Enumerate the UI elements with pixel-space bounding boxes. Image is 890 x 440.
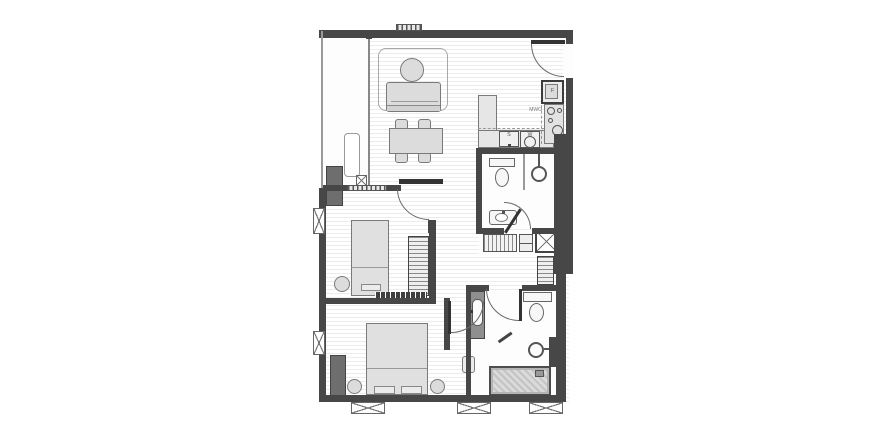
page: { "labels": { "fridge": "F", "sink": "S"…: [0, 0, 890, 440]
window-sill-marker: [457, 402, 491, 414]
bottom-wall: [319, 395, 566, 402]
toilet-tank: [489, 158, 515, 167]
bedrooms-divider-wall: [323, 298, 436, 304]
bed-foot-shelf: [361, 284, 381, 291]
hall-cabinet: [537, 256, 554, 285]
right-wall-thick: [554, 134, 573, 274]
shower-head: [531, 166, 547, 182]
nightstand: [347, 379, 362, 394]
window-sill-marker: [529, 402, 563, 414]
toilet-bowl: [529, 303, 544, 322]
blanket-line: [352, 267, 388, 268]
radiator-strip: [375, 292, 427, 298]
toilet-bowl: [495, 168, 509, 187]
burner: [548, 118, 553, 123]
bedroom-door-leaf: [399, 179, 443, 184]
burner: [547, 107, 555, 115]
stool: [334, 276, 350, 292]
dining-table: [389, 128, 443, 154]
window-marker: [313, 331, 325, 355]
wardrobe: [408, 236, 429, 296]
burner: [557, 108, 562, 113]
shower-glass: [523, 154, 525, 190]
coffee-table: [400, 58, 424, 82]
bedroom-right-wall: [429, 232, 436, 298]
pillow: [374, 386, 395, 394]
right-wall: [566, 78, 573, 140]
balcony-bench: [344, 133, 360, 177]
wardrobe-dark: [330, 355, 346, 396]
sofa-back: [387, 105, 440, 111]
balcony-divider-post: [366, 30, 372, 39]
bathroom1-bottom-wall: [532, 228, 560, 234]
fridge: F: [541, 80, 564, 104]
sofa-seat-line: [391, 101, 438, 102]
top-vent: [396, 24, 422, 31]
washer-drum: [524, 136, 536, 148]
bathroom1-bottom-wall: [476, 228, 504, 234]
entry-threshold: [563, 42, 573, 80]
sink-faucet: [508, 144, 511, 147]
storage-cells: [519, 234, 533, 252]
bathroom1-top-wall: [476, 148, 564, 154]
balcony-divider: [368, 31, 370, 185]
top-wall: [319, 30, 573, 38]
right-wall-lower: [556, 274, 566, 402]
sofa: [386, 82, 441, 112]
right-wall: [566, 30, 573, 44]
bathtub: [489, 366, 551, 396]
shower-wall-stub: [549, 337, 556, 367]
bed-double: [366, 323, 428, 395]
window-marker: [313, 208, 325, 234]
pillow: [401, 386, 422, 394]
floor-plan: F MWO S W: [311, 18, 579, 418]
linen-cabinet: [483, 234, 517, 252]
window-sill-marker: [351, 402, 385, 414]
bathroom2-top-wall: [522, 285, 556, 291]
kitchen-sink: S: [499, 131, 519, 147]
nightstand: [430, 379, 445, 394]
bathroom1-left-wall: [476, 148, 482, 234]
blanket-line: [367, 368, 427, 369]
sliding-door-track: [347, 185, 387, 191]
cell-divider: [520, 243, 532, 244]
bathroom2-door-leaf: [519, 289, 522, 321]
counter-overhang-line: [478, 128, 554, 129]
tub-faucet: [535, 370, 544, 377]
toilet-tank: [523, 292, 552, 302]
balcony-rail: [321, 31, 323, 188]
fridge-label: F: [543, 82, 562, 102]
shower-head: [528, 342, 544, 358]
washing-machine: W: [520, 131, 540, 148]
bed-single: [351, 220, 389, 296]
microwave-label: MWO: [517, 106, 542, 114]
